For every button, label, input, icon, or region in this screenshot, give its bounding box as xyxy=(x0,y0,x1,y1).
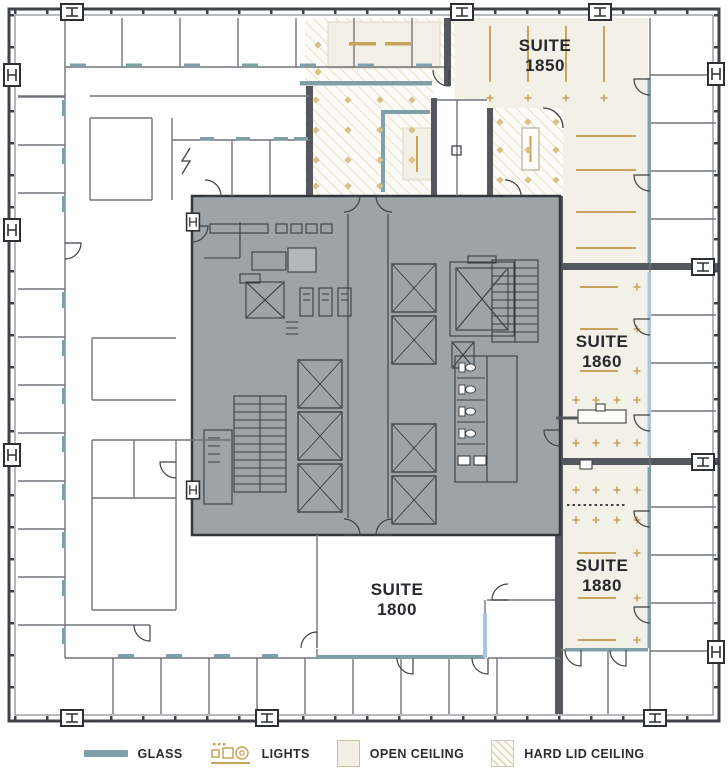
glass-swatch xyxy=(84,750,128,757)
legend: GLASS LIGHTS OPEN CEILING HARD LID CEILI… xyxy=(0,740,728,767)
suite-1850-label: SUITE 1850 xyxy=(487,36,603,76)
legend-label: LIGHTS xyxy=(262,747,310,761)
open-ceiling-swatch xyxy=(337,740,360,767)
suite-1880-line1: SUITE xyxy=(546,556,658,576)
white-room xyxy=(437,100,487,196)
reception-desk xyxy=(578,410,626,423)
suite-1880-label: SUITE 1880 xyxy=(546,556,658,596)
legend-item-open-ceiling: OPEN CEILING xyxy=(337,740,464,767)
legend-label: OPEN CEILING xyxy=(370,747,464,761)
suite-1850-line2: 1850 xyxy=(487,56,603,76)
suite-1860-label: SUITE 1860 xyxy=(546,332,658,372)
hard-lid-ceiling-swatch xyxy=(491,740,514,767)
suite-1880-line2: 1880 xyxy=(546,576,658,596)
suite-1800-label: SUITE 1800 xyxy=(340,580,454,620)
floor-plan-page: SUITE 1850 SUITE 1860 SUITE 1880 SUITE 1… xyxy=(0,0,728,776)
monitor-icon xyxy=(596,404,605,411)
bifold-door xyxy=(182,148,190,174)
printer-icon xyxy=(580,460,592,469)
building-core xyxy=(192,196,560,535)
legend-label: GLASS xyxy=(138,747,183,761)
suite-1860-line2: 1860 xyxy=(546,352,658,372)
legend-item-hard-lid: HARD LID CEILING xyxy=(491,740,644,767)
open-ceiling-inset xyxy=(328,22,440,68)
lights-icon xyxy=(210,741,252,766)
suite-1800-line2: 1800 xyxy=(340,600,454,620)
suite-1800-line1: SUITE xyxy=(340,580,454,600)
suite-1860-line1: SUITE xyxy=(546,332,658,352)
legend-label: HARD LID CEILING xyxy=(524,747,644,761)
legend-item-lights: LIGHTS xyxy=(210,741,310,766)
legend-item-glass: GLASS xyxy=(84,747,183,761)
suite-1850-line1: SUITE xyxy=(487,36,603,56)
